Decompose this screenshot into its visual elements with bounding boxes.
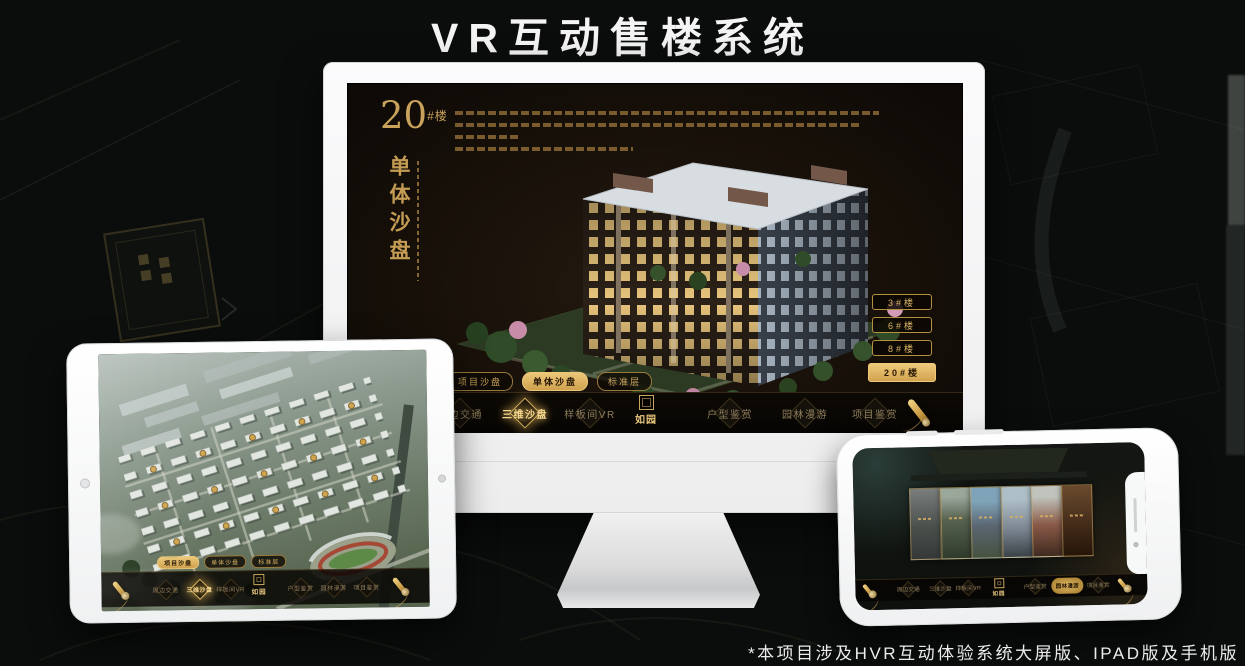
nav-item-model-room-vr[interactable]: 样板间VR: [952, 580, 984, 597]
building-button-6[interactable]: 6#楼: [872, 317, 932, 333]
tablet-nav-bar: 周边交通 三维沙盘 样板间VR 如园 户型鉴赏 园林漫游 项目鉴赏: [101, 568, 429, 608]
phone-volume-button[interactable]: [906, 431, 938, 437]
ruyuan-seal-icon: [994, 578, 1004, 588]
gallery-panel[interactable]: [1061, 484, 1094, 557]
scroll-roll-icon[interactable]: [1121, 577, 1125, 592]
tablet-camera-icon: [80, 478, 90, 488]
phone-notch: [1125, 472, 1147, 574]
heading-english-subtitle-line: [417, 161, 419, 281]
nav-item-garden-tour[interactable]: 园林漫游: [1051, 577, 1083, 594]
nav-item-3d-sandbox[interactable]: 三维沙盘: [495, 399, 555, 427]
building-button-20[interactable]: 20#楼: [868, 363, 936, 382]
phone-nav-bar: 周边交通 三维沙盘 样板间VR 如园 户型鉴赏 园林漫游 项目鉴赏: [855, 573, 1147, 602]
tab-standard-floor[interactable]: 标准层: [251, 555, 286, 568]
nav-item-unit-appreciation[interactable]: 户型鉴赏: [700, 399, 760, 427]
mode-tab-group: 项目沙盘 单体沙盘 标准层: [447, 372, 652, 391]
building-button-8[interactable]: 8#楼: [872, 340, 932, 356]
ruyuan-seal-icon: [253, 574, 264, 585]
gallery-panel[interactable]: [909, 488, 942, 561]
scroll-roll-icon[interactable]: [397, 576, 402, 596]
brand-logo-ruyuan: 如园: [251, 574, 266, 596]
phone-camera-icon: [1133, 542, 1138, 547]
description-text-line: [455, 123, 862, 127]
phone-speaker-icon: [1133, 498, 1137, 532]
tab-project-sandbox[interactable]: 项目沙盘: [447, 372, 513, 391]
pavilion-beam-silhouette: [911, 471, 1086, 481]
poster-footnote: *本项目涉及HVR互动体验系统大屏版、IPAD版及手机版: [748, 639, 1239, 664]
tab-single-building-sandbox[interactable]: 单体沙盘: [204, 555, 246, 569]
building-button-3[interactable]: 3#楼: [872, 294, 932, 310]
tablet-mode-tab-group: 项目沙盘 单体沙盘 标准层: [157, 555, 286, 570]
building-heading-unit: #楼: [427, 109, 448, 123]
tablet-device: 项目沙盘 单体沙盘 标准层 周边交通 三维沙盘 样板间VR 如园 户型鉴赏 园林…: [66, 338, 457, 623]
nav-item-garden-tour[interactable]: 园林漫游: [775, 399, 835, 427]
gallery-panel[interactable]: [1001, 485, 1034, 558]
pavilion-roof-silhouette: [928, 448, 1069, 475]
nav-item-project-appreciation[interactable]: 项目鉴赏: [347, 574, 385, 599]
building-heading: 20#楼: [380, 97, 448, 134]
background-building-strip: [1228, 75, 1245, 225]
tab-standard-floor[interactable]: 标准层: [597, 372, 652, 391]
building-render-3d[interactable]: [443, 149, 913, 399]
nav-item-project-appreciation[interactable]: 项目鉴赏: [845, 399, 905, 427]
tablet-home-button[interactable]: [438, 474, 446, 482]
gallery-panel[interactable]: [1031, 485, 1064, 558]
monitor-stand: [557, 513, 760, 608]
tablet-screen: 项目沙盘 单体沙盘 标准层 周边交通 三维沙盘 样板间VR 如园 户型鉴赏 园林…: [98, 350, 430, 612]
poster-canvas: VR互动售楼系统 20#楼 单体沙盘: [0, 0, 1245, 666]
nav-item-project-appreciation[interactable]: 项目鉴赏: [1082, 577, 1114, 594]
nav-item-model-room-vr[interactable]: 样板间VR: [560, 399, 620, 427]
description-text-line: [455, 111, 879, 115]
background-plaque: [104, 219, 220, 341]
building-selector-group: 3#楼 6#楼 8#楼 20#楼: [868, 294, 936, 382]
brand-logo-ruyuan: 如园: [635, 395, 657, 426]
brand-logo-ruyuan: 如园: [992, 578, 1005, 597]
nav-item-model-room-vr[interactable]: 样板间VR: [211, 576, 249, 601]
heading-vertical-label: 单体沙盘: [383, 155, 413, 267]
nav-item-surroundings[interactable]: 周边交通: [146, 577, 184, 602]
poster-title: VR互动售楼系统: [0, 4, 1245, 64]
background-building-strip: [1226, 225, 1245, 455]
nav-item-unit-appreciation[interactable]: 户型鉴赏: [1019, 578, 1051, 595]
phone-screen: 周边交通 三维沙盘 样板间VR 如园 户型鉴赏 园林漫游 项目鉴赏: [852, 442, 1148, 611]
gallery-panel[interactable]: [970, 486, 1003, 559]
description-text-line: [455, 135, 519, 139]
phone-device: 周边交通 三维沙盘 样板间VR 如园 户型鉴赏 园林漫游 项目鉴赏: [836, 427, 1182, 627]
tab-project-sandbox[interactable]: 项目沙盘: [157, 556, 199, 570]
scroll-roll-icon[interactable]: [117, 580, 122, 600]
tab-single-building-sandbox[interactable]: 单体沙盘: [522, 372, 588, 391]
scroll-roll-icon[interactable]: [915, 397, 922, 427]
gallery-panel[interactable]: [940, 487, 973, 560]
nav-item-surroundings[interactable]: 周边交通: [892, 581, 924, 598]
ruyuan-seal-icon: [639, 395, 654, 410]
scroll-roll-icon[interactable]: [866, 583, 870, 598]
